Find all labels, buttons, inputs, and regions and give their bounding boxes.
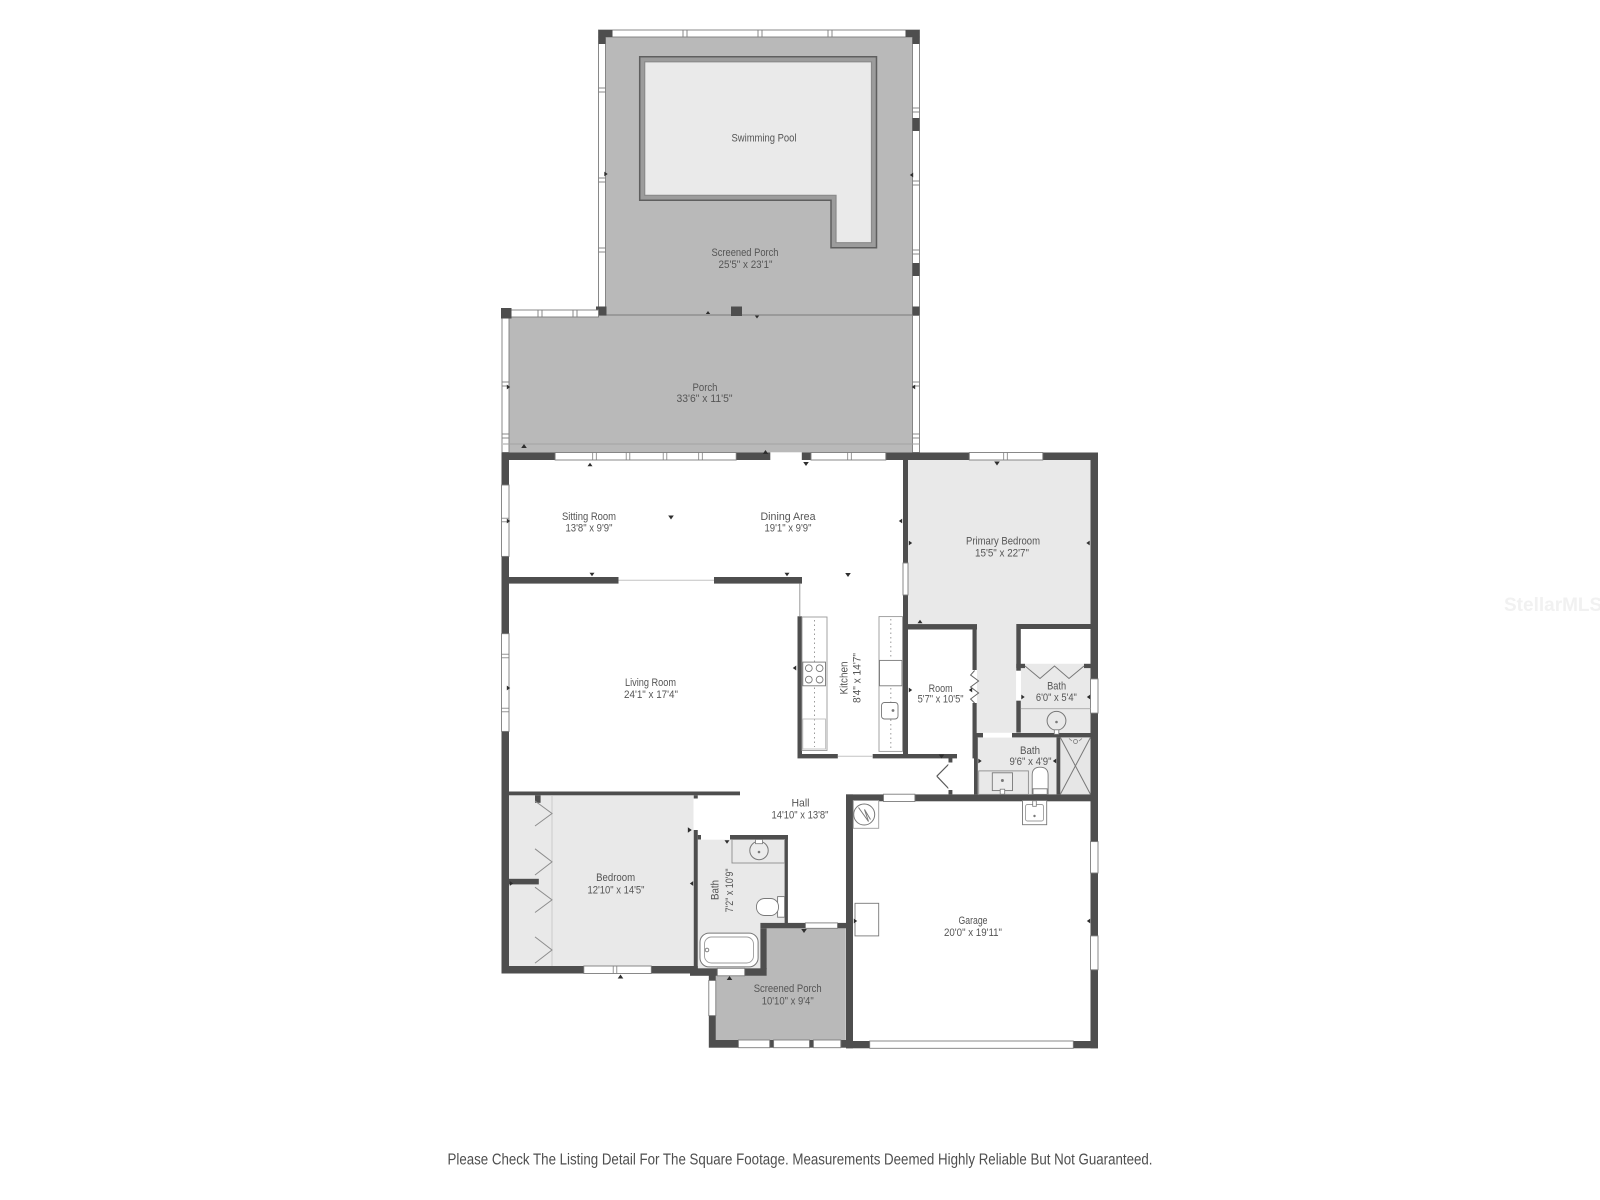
svg-text:20'0" x 19'11": 20'0" x 19'11" (944, 927, 1002, 939)
svg-text:7'2" x 10'9": 7'2" x 10'9" (724, 868, 736, 912)
svg-text:5'7" x 10'5": 5'7" x 10'5" (918, 693, 964, 705)
svg-text:StellarMLS: StellarMLS (1504, 595, 1600, 616)
svg-text:Hall: Hall (792, 797, 810, 809)
svg-text:19'1" x 9'9": 19'1" x 9'9" (765, 522, 812, 534)
svg-text:25'5" x 23'1": 25'5" x 23'1" (719, 259, 773, 271)
svg-text:Please Check The Listing Detai: Please Check The Listing Detail For The … (448, 1152, 1153, 1169)
svg-text:Sitting Room: Sitting Room (562, 511, 616, 523)
svg-text:33'6" x 11'5": 33'6" x 11'5" (677, 393, 733, 405)
svg-text:Screened Porch: Screened Porch (712, 247, 779, 259)
svg-text:13'8" x 9'9": 13'8" x 9'9" (566, 522, 613, 534)
svg-text:Living Room: Living Room (625, 677, 676, 689)
svg-text:9'6" x 4'9": 9'6" x 4'9" (1010, 756, 1052, 768)
svg-text:6'0" x 5'4": 6'0" x 5'4" (1036, 692, 1077, 704)
svg-text:Garage: Garage (959, 915, 988, 927)
svg-text:12'10" x 14'5": 12'10" x 14'5" (588, 884, 645, 896)
svg-text:Primary Bedroom: Primary Bedroom (966, 535, 1040, 547)
svg-text:Bedroom: Bedroom (596, 872, 635, 884)
svg-text:24'1" x 17'4": 24'1" x 17'4" (624, 689, 678, 701)
svg-text:10'10" x 9'4": 10'10" x 9'4" (762, 995, 814, 1007)
svg-text:Bath: Bath (709, 880, 721, 900)
svg-text:Screened Porch: Screened Porch (754, 983, 822, 995)
svg-text:Swimming Pool: Swimming Pool (732, 132, 797, 144)
svg-text:8'4" x 14'7": 8'4" x 14'7" (851, 653, 863, 703)
svg-text:Kitchen: Kitchen (838, 662, 850, 695)
svg-text:14'10" x 13'8": 14'10" x 13'8" (772, 809, 829, 821)
svg-text:Dining Area: Dining Area (761, 511, 817, 523)
svg-text:Bath: Bath (1047, 681, 1066, 693)
svg-text:15'5" x 22'7": 15'5" x 22'7" (975, 547, 1029, 559)
